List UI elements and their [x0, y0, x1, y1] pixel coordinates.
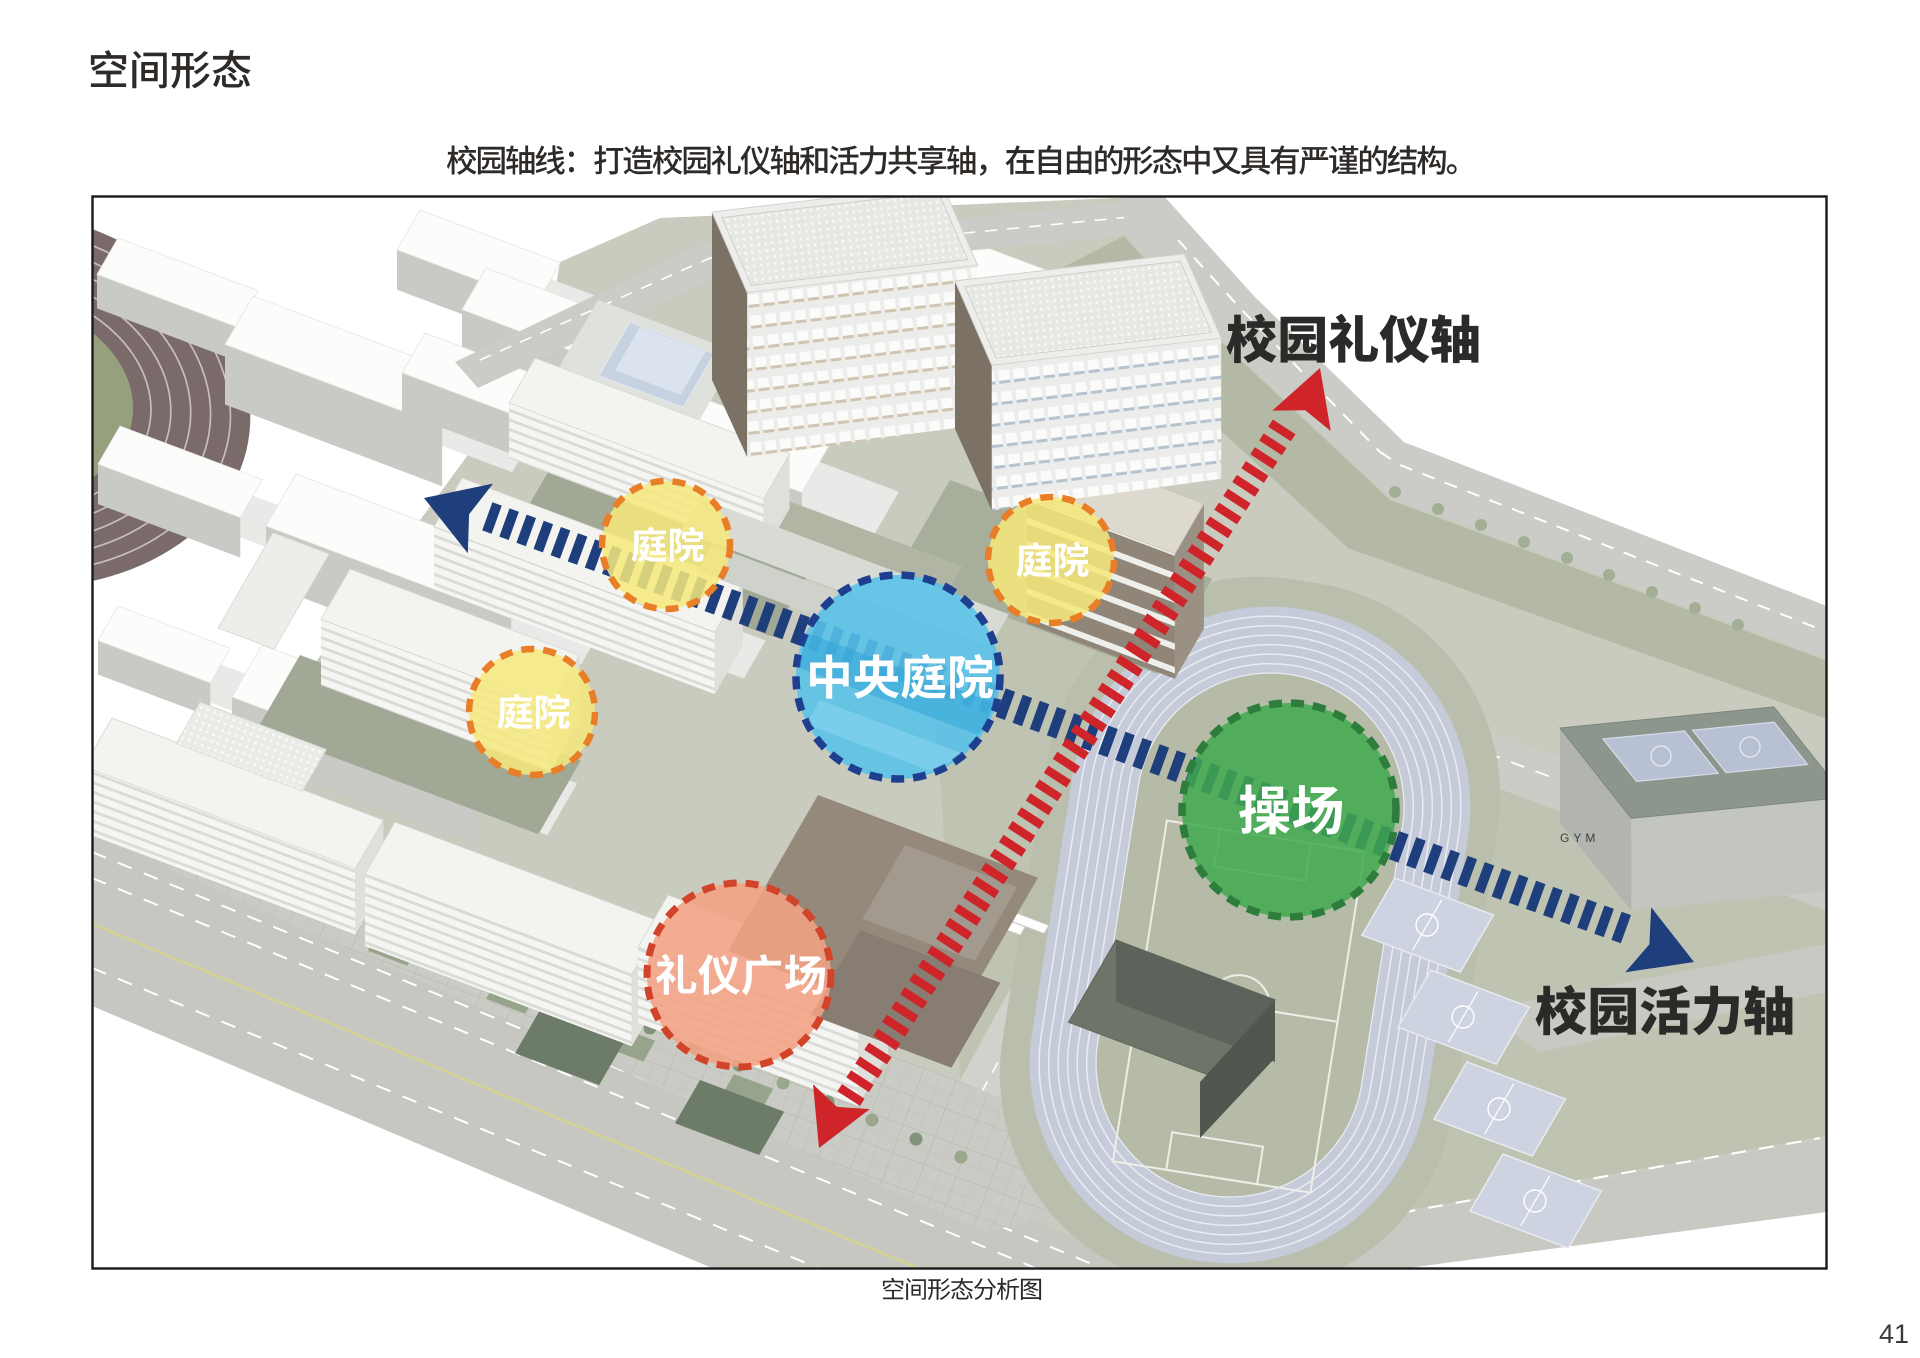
- svg-text:41: 41: [1879, 1319, 1909, 1349]
- svg-text:GYM: GYM: [1560, 831, 1599, 845]
